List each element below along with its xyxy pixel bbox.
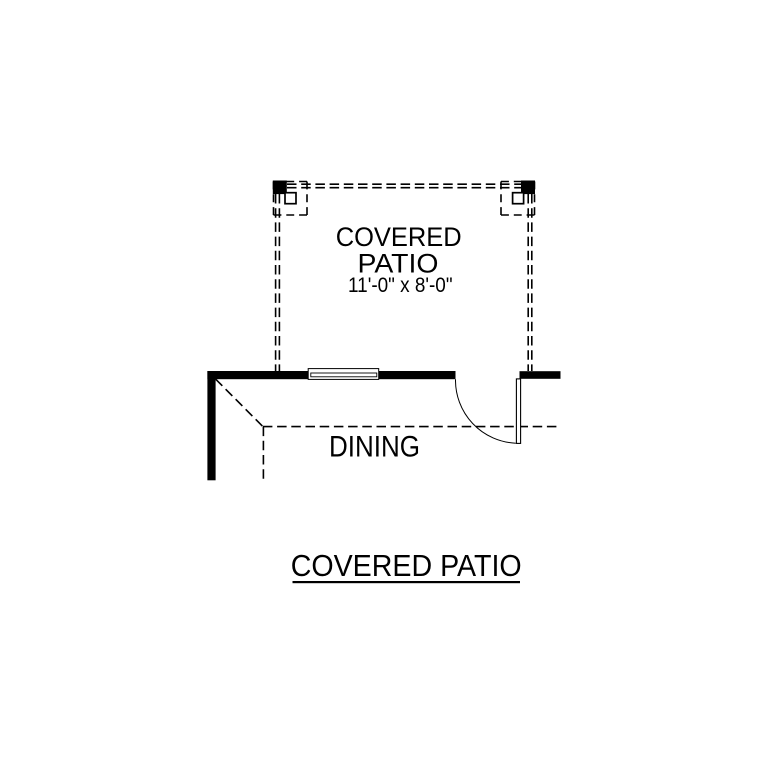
svg-text:DINING: DINING	[329, 431, 420, 463]
svg-text:COVERED PATIO: COVERED PATIO	[291, 549, 522, 583]
svg-text:11'-0" x 8'-0": 11'-0" x 8'-0"	[348, 274, 453, 297]
